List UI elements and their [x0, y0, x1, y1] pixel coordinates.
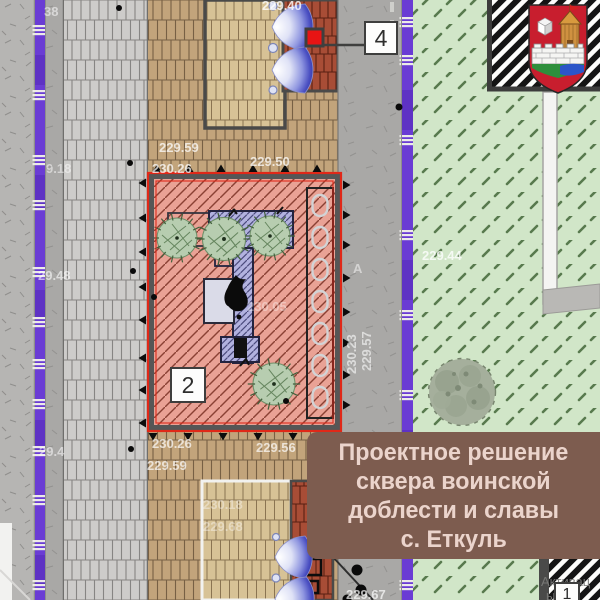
elevation-label: 230.05 [247, 299, 287, 314]
site-plan: 229.40 229.59 230.26 229.50 229.44 229.5… [0, 0, 600, 600]
elevation-label: 9.18 [46, 161, 71, 176]
elevation-label: 38 [44, 4, 58, 19]
banner-line: сквера воинской [356, 467, 551, 496]
road-letter-label: А [353, 261, 363, 276]
elevation-label: 230.26 [152, 436, 192, 451]
path-white [543, 92, 557, 304]
road-shoulder-left [46, 0, 64, 600]
elevation-label: 230.26 [152, 161, 192, 176]
title-banner: Проектное решение сквера воинской доблес… [307, 432, 600, 559]
elevation-label: 230.18 [203, 497, 243, 512]
elevation-label: 229.59 [159, 140, 199, 155]
elevation-label: 229.57 [359, 331, 374, 371]
elevation-label: 229.67 [346, 587, 386, 600]
marker-red-square [306, 29, 323, 46]
concrete-sidewalk-left [0, 0, 35, 600]
elevation-label: 229.59 [147, 458, 187, 473]
elevation-label: 229.40 [262, 0, 302, 13]
paved-path-gray [64, 0, 148, 600]
banner-line: с. Еткуль [400, 525, 506, 554]
monument-plinth [234, 338, 247, 358]
elevation-label: 230.23 [344, 334, 359, 374]
elevation-label: 29.4 [39, 444, 65, 459]
elevation-label: 229.44 [422, 248, 463, 263]
elevation-label: 229.56 [256, 440, 296, 455]
callout-box-2: 2 [170, 367, 206, 403]
elevation-label: 29.48 [38, 268, 71, 283]
callout-box-1: 1 [554, 582, 580, 600]
callout-box-4: 4 [364, 21, 398, 55]
banner-line: Проектное решение [339, 438, 569, 467]
cube-charge [538, 18, 552, 35]
banner-line: доблести и славы [348, 496, 559, 525]
etkul-coat-of-arms [526, 2, 590, 96]
elevation-label: 229.50 [250, 154, 290, 169]
white-edge-strip [0, 523, 12, 600]
elevation-label: 229.68 [203, 519, 243, 534]
building-top [205, 0, 285, 128]
